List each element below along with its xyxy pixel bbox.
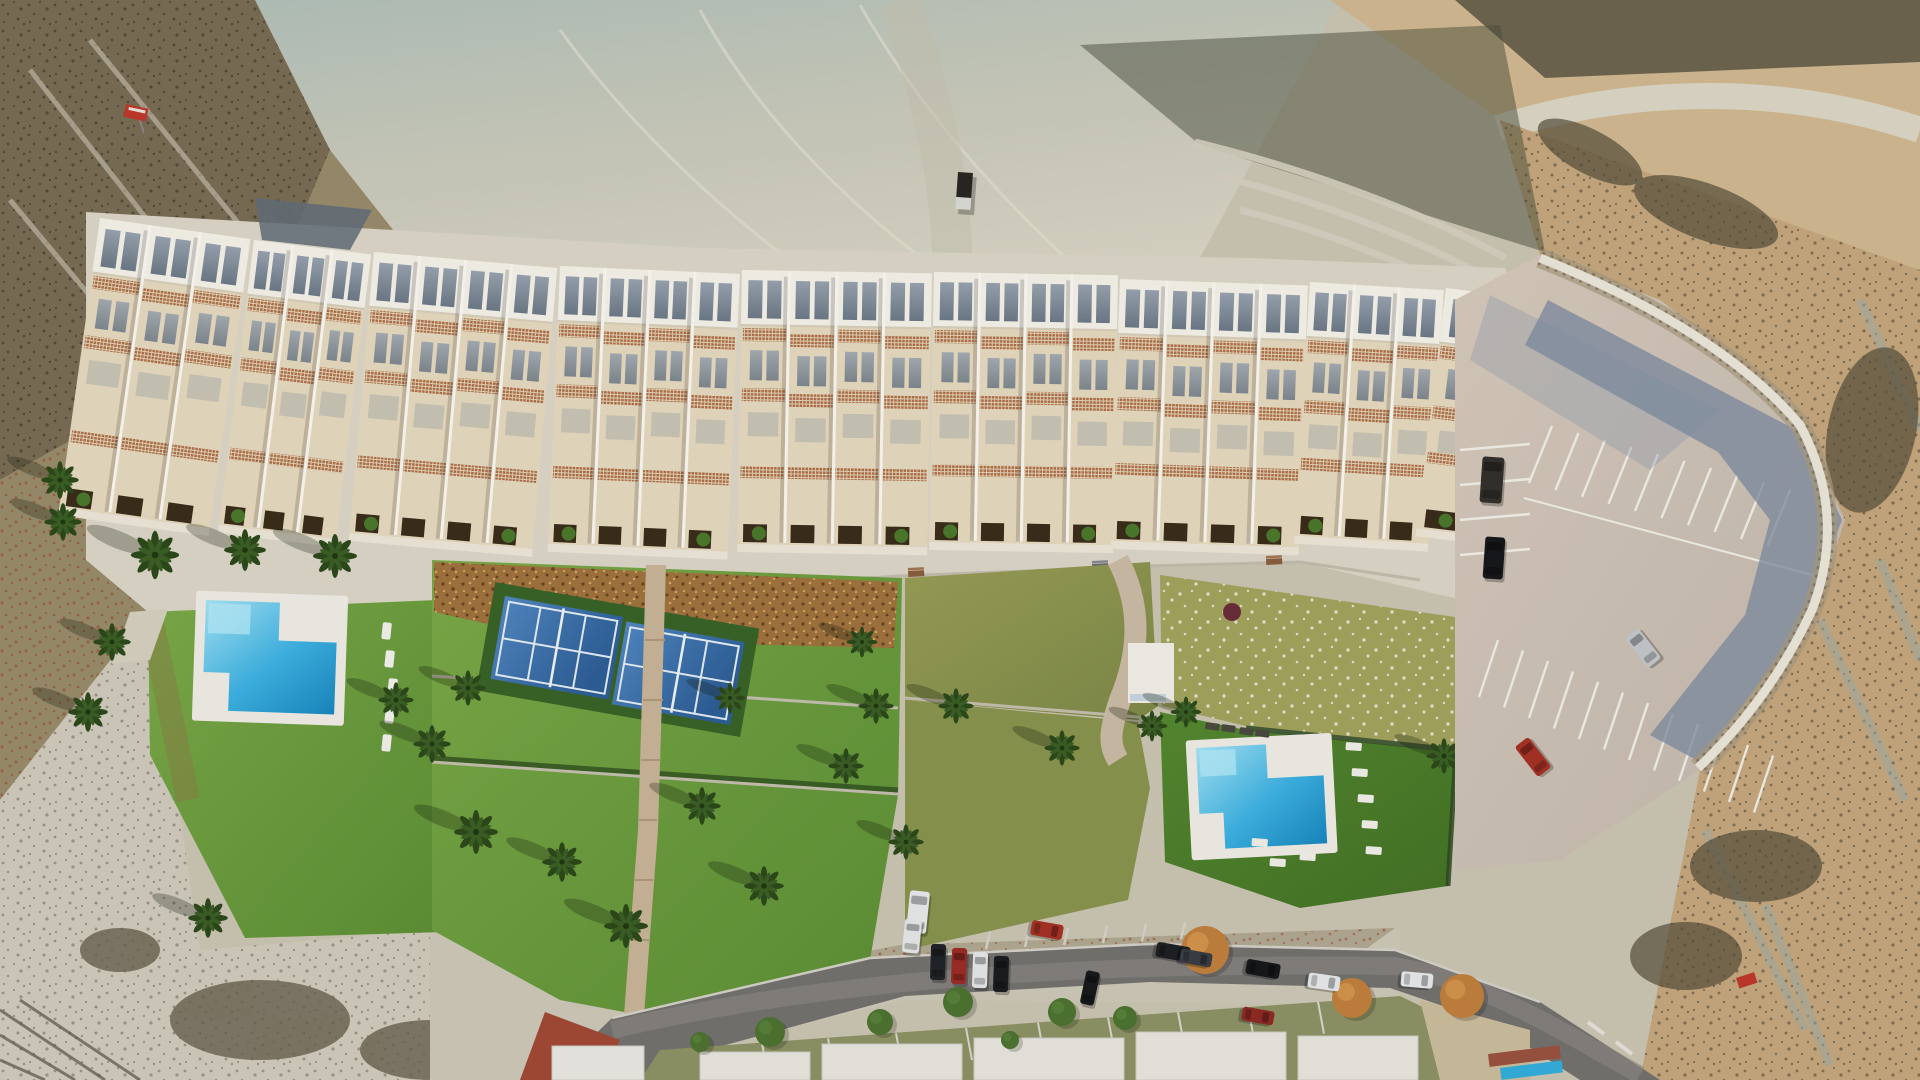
vignette	[0, 0, 1920, 1080]
misc-layer	[0, 0, 1920, 1080]
aerial-site-photo	[0, 0, 1920, 1080]
aerial-site-render	[0, 0, 1920, 1080]
